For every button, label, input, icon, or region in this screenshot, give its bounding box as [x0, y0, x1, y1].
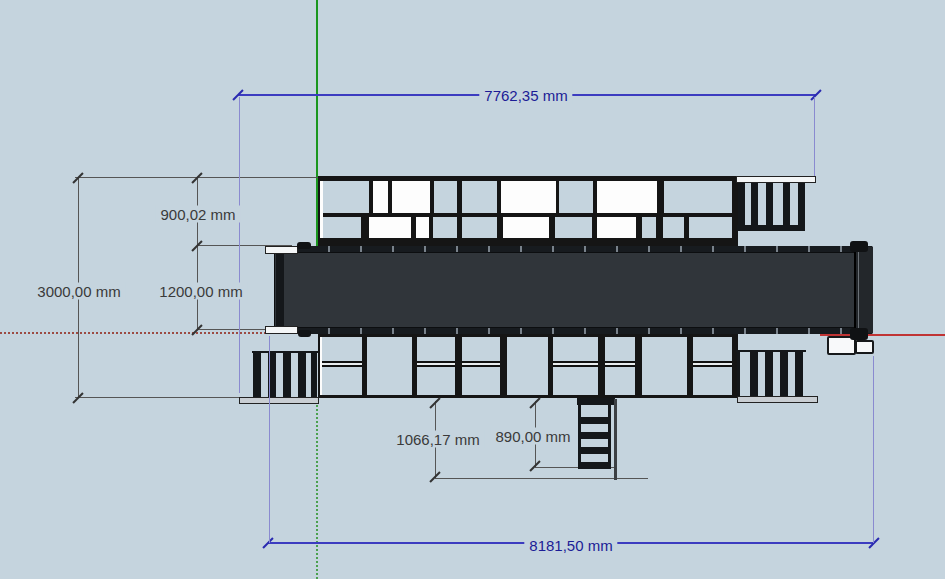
- belt-mount-knob: [298, 330, 311, 337]
- dimension-label-top-width[interactable]: 7762,35 mm: [479, 87, 572, 104]
- frame-midrail: [462, 361, 500, 367]
- cad-viewport[interactable]: 7762,35 mm 900,02 mm 1200,00 mm 3000,00 …: [0, 0, 945, 579]
- dimension-label-bottom-width[interactable]: 8181,50 mm: [524, 537, 617, 554]
- frame-panel: [597, 181, 657, 213]
- ladder-bar: [765, 352, 773, 397]
- frame-panel: [462, 217, 497, 238]
- frame-midrail: [605, 361, 635, 367]
- service-ladder-top-bar[interactable]: [577, 398, 615, 405]
- belt-right-member-highlight: [858, 250, 859, 330]
- belt-right-member: [854, 247, 873, 333]
- frame-panel: [597, 217, 636, 238]
- stair-tread[interactable]: [738, 183, 745, 226]
- dimension-label-upper-walkway-depth[interactable]: 900,02 mm: [155, 206, 240, 223]
- ladder-bar[interactable]: [253, 353, 261, 398]
- ladder-bar[interactable]: [750, 352, 758, 397]
- frame-panel: [462, 181, 497, 213]
- conveyor-belt[interactable]: [274, 252, 873, 328]
- lower-walkway-frame[interactable]: [318, 334, 738, 398]
- dimension-8181-ext-right: [873, 356, 874, 543]
- frame-panel: [417, 337, 455, 395]
- dimension-900-1200-line: [197, 178, 198, 330]
- frame-midrail: [322, 361, 362, 367]
- green-axis-dotted-line: [316, 398, 318, 579]
- dimension-8181-ext-left: [269, 336, 270, 543]
- service-ladder-rung: [579, 417, 611, 424]
- ladder-base-plate: [737, 396, 818, 403]
- upper-walkway-frame[interactable]: [318, 176, 738, 246]
- ladder-bar: [737, 352, 740, 397]
- stair-tread: [751, 183, 758, 226]
- frame-panel: [369, 217, 411, 238]
- stairs-top-rail: [736, 176, 816, 183]
- stair-tread: [766, 183, 773, 226]
- stair-tread: [798, 183, 805, 226]
- service-ladder-rung: [579, 447, 611, 454]
- frame-midrail: [417, 361, 455, 367]
- belt-end-cap: [265, 246, 298, 254]
- service-ladder-rung: [579, 462, 611, 469]
- frame-panel: [392, 181, 430, 213]
- belt-mount-knob: [297, 242, 311, 249]
- frame-midrail: [553, 361, 598, 367]
- frame-panel: [553, 337, 598, 395]
- belt-mount-knob: [850, 241, 868, 252]
- ladder-bar: [311, 353, 317, 398]
- frame-panel: [689, 217, 732, 238]
- stair-tread: [783, 183, 790, 226]
- frame-panel: [322, 337, 362, 395]
- ladder-bar: [298, 353, 306, 398]
- frame-panel: [559, 181, 593, 213]
- dimension-7762-ext-left: [239, 97, 240, 393]
- frame-panel: [416, 217, 429, 238]
- dimension-7762-ext-right: [814, 97, 815, 180]
- service-ladder-pole: [614, 399, 617, 480]
- ladder-bar: [780, 352, 788, 397]
- frame-panel: [605, 337, 635, 395]
- stairs-bottom-rail: [737, 225, 805, 231]
- frame-panel: [503, 217, 549, 238]
- ladder-base-plate: [239, 397, 319, 404]
- belt-end-cap: [265, 326, 298, 334]
- frame-panel: [434, 181, 457, 213]
- frame-panel: [663, 217, 684, 238]
- frame-panel: [373, 181, 388, 213]
- frame-panel: [507, 337, 548, 395]
- frame-panel: [642, 217, 656, 238]
- dimension-label-belt-depth[interactable]: 1200,00 mm: [154, 283, 247, 300]
- frame-panel: [433, 217, 457, 238]
- frame-panel: [323, 181, 369, 213]
- dimension-label-ladder-length[interactable]: 1066,17 mm: [391, 431, 484, 448]
- red-axis-dotted-line: [0, 332, 270, 334]
- frame-panel: [367, 337, 412, 395]
- ladder-bar: [795, 352, 803, 397]
- frame-panel: [462, 337, 500, 395]
- ladder-bar: [283, 353, 291, 398]
- dimension-label-ladder-offset[interactable]: 890,00 mm: [490, 428, 575, 445]
- dimension-label-overall-depth[interactable]: 3000,00 mm: [32, 283, 125, 300]
- belt-left-member: [276, 253, 284, 327]
- frame-midrail: [693, 361, 732, 367]
- drive-motor-box-small: [855, 340, 874, 354]
- frame-panel: [323, 217, 361, 238]
- frame-panel: [693, 337, 732, 395]
- frame-panel: [501, 181, 556, 213]
- belt-mount-knob: [850, 328, 868, 340]
- frame-panel: [664, 181, 732, 213]
- frame-panel: [642, 337, 687, 395]
- service-ladder-rung: [579, 432, 611, 439]
- frame-panel: [555, 217, 592, 238]
